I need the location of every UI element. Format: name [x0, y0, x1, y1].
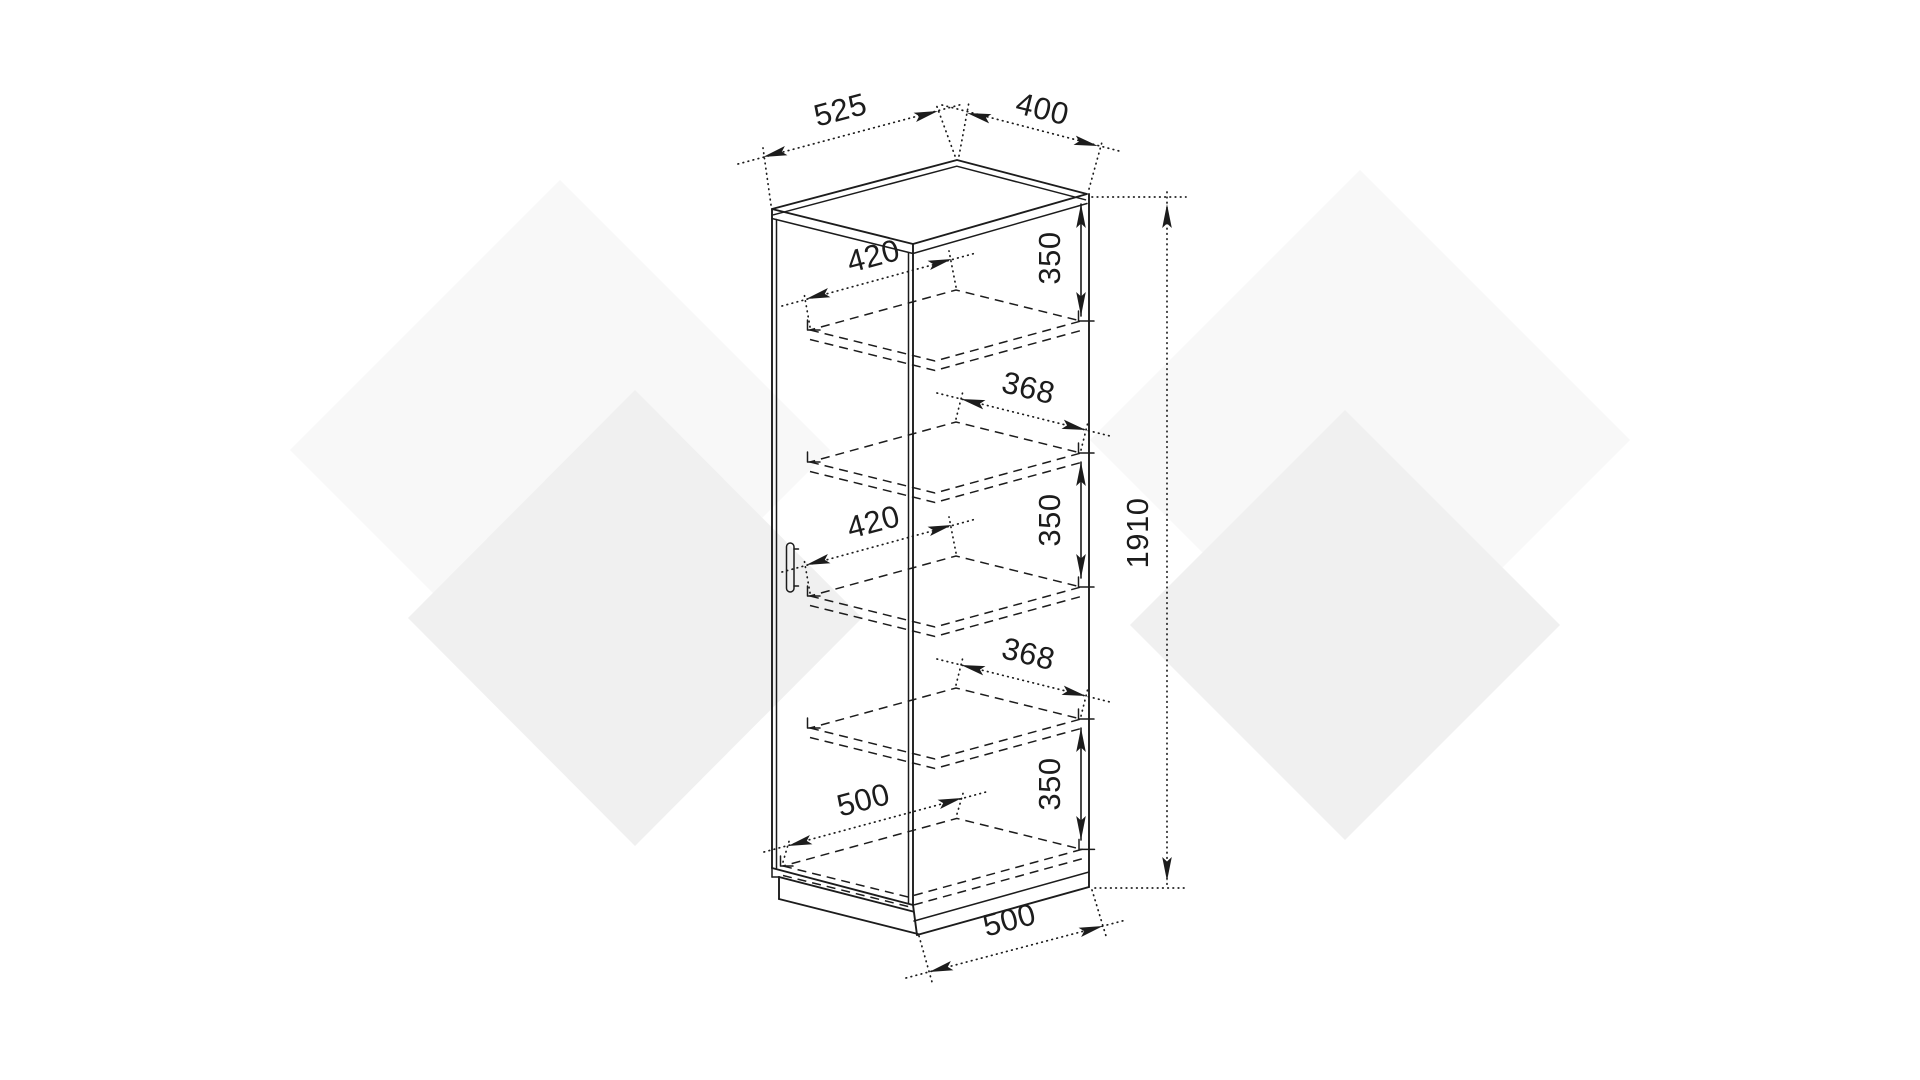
dim-label-420-lower: 420: [843, 498, 903, 545]
dim-gap-350-middle: 350: [1032, 462, 1086, 578]
shelf-1: [808, 290, 1095, 371]
extension-line: [956, 657, 963, 685]
plinth-bottom-edge: [779, 899, 918, 934]
dim-label-350-bottom: 350: [1032, 757, 1067, 810]
arrowhead: [1074, 136, 1100, 151]
dim-label-420-upper: 420: [843, 232, 903, 279]
shelf-outline: [810, 688, 1081, 759]
dim-shelf-depth-420-upper: 420: [782, 232, 976, 327]
extension-line: [1089, 142, 1102, 189]
shelf-2: [808, 422, 1095, 503]
shelf-outline: [783, 818, 1082, 897]
arrowhead: [966, 108, 992, 123]
dim-top-width-400: 400: [942, 85, 1123, 189]
drawing-page: 525 400 420 368: [0, 0, 1920, 1080]
dim-label-368-lower: 368: [998, 630, 1058, 677]
technical-drawing-canvas: 525 400 420 368: [0, 0, 1920, 1080]
dim-gap-350-bottom: 350: [1032, 728, 1086, 840]
extension-line: [956, 391, 963, 419]
extension-line: [949, 517, 956, 553]
arrowhead: [1079, 921, 1105, 937]
arrowhead: [787, 835, 813, 851]
dimensions: 525 400 420 368: [738, 85, 1186, 982]
dim-base-depth-500: 500: [906, 890, 1126, 982]
dim-label-368-upper: 368: [998, 364, 1058, 411]
dim-gap-350-top: 350: [1032, 204, 1086, 316]
door-bottom-edge: [772, 868, 913, 905]
extension-line: [1081, 688, 1088, 716]
arrowhead: [960, 660, 986, 675]
dim-label-1910: 1910: [1120, 498, 1155, 569]
shelf-corner-mark-right: [1079, 709, 1095, 719]
bottom-panel: [781, 818, 1095, 906]
shelf-corner-mark-right: [1079, 839, 1095, 849]
extension-line: [949, 251, 956, 287]
dim-top-depth-525: 525: [738, 86, 963, 205]
arrowhead: [1062, 686, 1088, 701]
arrowhead: [960, 394, 986, 409]
arrowhead: [1162, 857, 1172, 881]
dim-inner-width-368-lower: 368: [937, 630, 1110, 716]
arrowhead: [762, 146, 788, 162]
shelf-corner-mark-left: [781, 856, 794, 866]
extension-line: [783, 838, 790, 862]
dim-total-height-1910: 1910: [1092, 192, 1186, 888]
dim-label-400: 400: [1012, 85, 1072, 132]
arrowhead: [805, 288, 831, 304]
background-watermark: [290, 170, 1630, 846]
arrowhead: [1062, 420, 1088, 435]
dim-label-350-top: 350: [1032, 231, 1067, 284]
arrowhead: [928, 961, 954, 977]
extension-line: [957, 790, 964, 814]
shelf-4: [808, 688, 1095, 769]
arrowhead: [938, 793, 964, 809]
extension-line: [1081, 422, 1088, 450]
shelf-thickness: [810, 331, 1081, 371]
extension-line: [936, 104, 955, 156]
dim-inner-width-368-upper: 368: [937, 364, 1110, 450]
arrowhead: [914, 106, 940, 122]
extension-line: [919, 936, 932, 982]
shelf-outline: [810, 422, 1081, 493]
dim-label-350-middle: 350: [1032, 493, 1067, 546]
extension-line: [959, 102, 969, 156]
shelf-outline: [810, 290, 1081, 361]
dim-label-500-inner: 500: [833, 776, 893, 823]
dim-label-525: 525: [810, 86, 870, 133]
dim-label-500-base: 500: [979, 896, 1039, 943]
shelf-corner-mark-right: [1079, 443, 1095, 453]
